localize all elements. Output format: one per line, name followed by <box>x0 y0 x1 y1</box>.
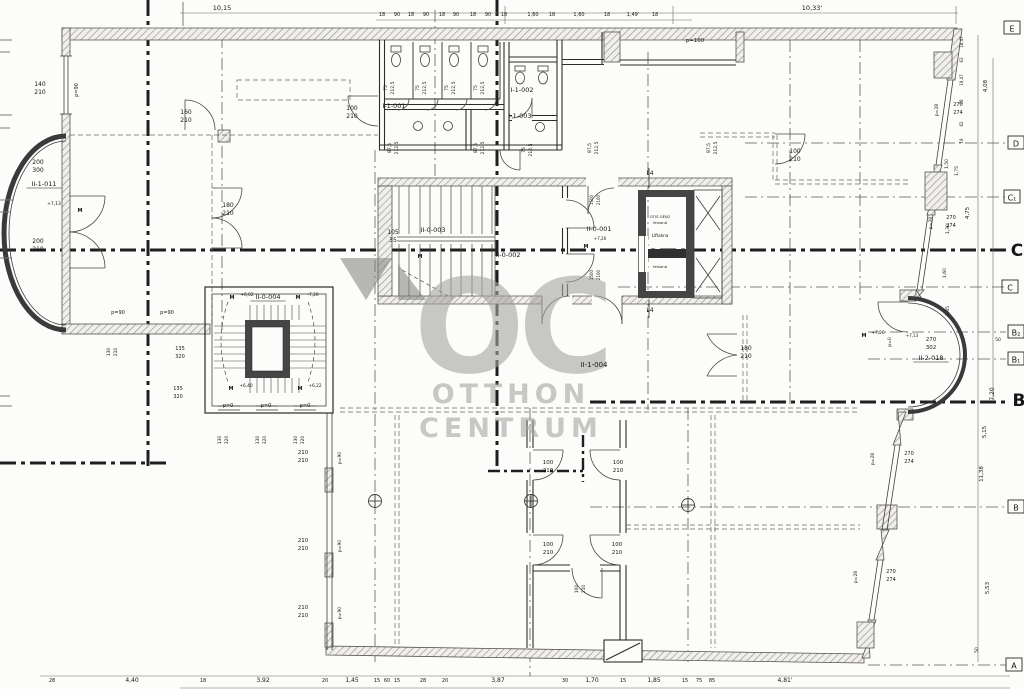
dim-text: 210 <box>581 585 587 594</box>
dim-text: 210 <box>613 468 624 474</box>
dim-text: 3,87 <box>491 677 505 684</box>
room-text: II-0-002 <box>495 251 520 259</box>
label-text: felvonó <box>653 264 668 269</box>
dim-text: 1,85 <box>647 677 661 684</box>
dim-text: 1500 <box>589 269 594 280</box>
dim-text: 135 <box>175 346 185 352</box>
grid-letter: B <box>1013 391 1024 411</box>
dim-text: p=90 <box>74 83 80 97</box>
dim-text: 300 <box>32 167 44 174</box>
dim-text: 1,70 <box>585 677 599 684</box>
dim-text: 78 <box>959 99 964 105</box>
dim-text: p=0 <box>887 337 893 347</box>
grid-letter: B₁ <box>1012 356 1021 365</box>
mark-text: M <box>298 386 303 392</box>
mark-text: M <box>78 208 83 214</box>
dim-text: 320 <box>262 436 268 445</box>
dim-text: 18 <box>470 12 476 18</box>
mark-text: L4 <box>646 307 653 314</box>
room-text: II-0-004 <box>255 293 280 301</box>
dim-text: 274 <box>904 459 914 465</box>
grid-letter: A <box>1011 662 1017 671</box>
level-text: -7,20 <box>307 292 318 298</box>
dim-text: 87,5 <box>387 143 393 153</box>
level-text: +6,22 <box>308 383 321 389</box>
dim-text: 180 <box>222 202 234 209</box>
dim-text: 210 <box>346 113 358 120</box>
dim-text: 50 <box>974 647 980 653</box>
dim-text: 212,5 <box>528 143 534 156</box>
dim-text: 210 <box>298 458 309 464</box>
room-text: I-1-003 <box>508 112 531 120</box>
dim-text: 30 <box>562 678 568 684</box>
dim-text: 28 <box>49 678 55 684</box>
dim-text: 35 <box>389 237 397 244</box>
dim-text: 210 <box>298 613 309 619</box>
dim-text: p=0 <box>261 403 272 409</box>
scan-artifacts <box>0 2 183 406</box>
elevator-door-opening <box>636 236 648 272</box>
dim-text: 210 <box>740 353 752 360</box>
dim-text: 15 <box>394 678 400 684</box>
dim-text: 100 <box>543 460 554 466</box>
dim-text: 62 <box>959 121 964 127</box>
dim-text: 212,5 <box>394 141 400 154</box>
dim-text: 85 <box>709 678 715 684</box>
dim-text: 320 <box>224 436 230 445</box>
dim-text: 1,60 <box>527 12 538 18</box>
dim-text: 15 <box>620 678 626 684</box>
dim-text: p=90 <box>337 452 343 464</box>
dim-text: 302 <box>926 345 937 351</box>
dim-text: p=90 <box>160 310 174 316</box>
mark-text: M <box>230 295 235 301</box>
dim-text: 100 <box>612 542 623 548</box>
dim-text: 320 <box>173 394 183 400</box>
watermark-line2: CENTRUM <box>419 413 603 444</box>
watermark: OC OTTHON CENTRUM <box>414 251 608 444</box>
grid-letter-layer: EDC₁CCB₂B₁BBA <box>1002 21 1024 671</box>
dim-text: 180 <box>740 345 752 352</box>
grid-letter: C₁ <box>1008 194 1017 203</box>
dim-text: 75 <box>473 85 479 91</box>
room-text: I-1-001 <box>382 102 405 110</box>
dim-text: 1,60 <box>573 12 584 18</box>
dim-text: 130 <box>217 436 223 445</box>
dim-text: 212,5 <box>594 141 600 154</box>
dim-text: 130 <box>293 436 299 445</box>
dim-text: 212,5 <box>422 81 428 94</box>
label-text: OTIS GEN2 <box>650 214 671 219</box>
dim-text: 1,30 <box>945 224 951 234</box>
dim-text: p=90 <box>337 540 343 552</box>
dim-text: 212,5 <box>713 141 719 154</box>
dim-text: 210 <box>543 550 554 556</box>
dim-text: 5,15 <box>982 425 988 438</box>
dim-text: 87,5 <box>706 143 712 153</box>
dim-text: 270 <box>946 215 956 221</box>
dim-text: 75 <box>383 85 389 91</box>
dim-text: 100 <box>346 105 358 112</box>
dim-text: p=90 <box>111 310 125 316</box>
dim-text: 212,5 <box>390 81 396 94</box>
mark-text: M <box>418 254 423 260</box>
dim-text: 1500 <box>589 194 594 205</box>
dim-text: p=0 <box>223 403 234 409</box>
label-text: Liftakna <box>652 233 669 238</box>
dim-text: 100 <box>574 585 580 594</box>
dim-text: 18 <box>652 12 658 18</box>
dim-text: 18 <box>408 12 414 18</box>
dim-text: 4,81' <box>777 677 792 684</box>
dim-text: 320 <box>300 436 306 445</box>
dim-text: 63 <box>959 57 964 63</box>
dim-text: 1,75 <box>954 166 960 176</box>
dim-text: 7,20 <box>989 387 996 401</box>
dim-text: 75 <box>696 678 702 684</box>
dim-text: 3,92 <box>256 677 270 684</box>
mark-text: M <box>862 333 867 339</box>
grid-letter: B <box>1013 504 1019 513</box>
grid-letter: C <box>1011 241 1023 261</box>
dim-text: 212,5 <box>480 81 486 94</box>
dim-text: 2100 <box>596 269 601 280</box>
level-text: +7,26 <box>871 330 884 336</box>
watermark-line1: OTTHON <box>432 379 591 410</box>
dim-text: 1,45 <box>345 677 359 684</box>
dim-text: 75 <box>444 85 450 91</box>
mark-text: L4 <box>646 170 653 177</box>
dim-text: 19,47 <box>959 74 964 86</box>
dim-text: 20 <box>322 678 328 684</box>
room-text: II-1-011 <box>31 180 56 188</box>
dim-text: 210 <box>222 210 234 217</box>
dim-text: p=28 <box>870 453 876 465</box>
dim-text: 210 <box>113 348 119 357</box>
mark-text: M <box>296 295 301 301</box>
dim-text: 130 <box>106 348 112 357</box>
dim-text: 18 <box>200 678 206 684</box>
dim-text: 18,47 <box>959 36 964 48</box>
dim-text: 270 <box>926 337 937 343</box>
dim-text: 210 <box>298 605 309 611</box>
dim-text: 18 <box>501 12 507 18</box>
dim-text: 1,60 <box>942 268 948 278</box>
level-text: +6,40 <box>239 383 252 389</box>
dim-text: 130 <box>255 436 261 445</box>
dim-text: 274 <box>953 110 963 116</box>
dim-text: p=90 <box>337 607 343 619</box>
dim-text: 210 <box>32 246 44 253</box>
dim-text: 10,33' <box>802 4 823 12</box>
dim-text: 210 <box>180 117 192 124</box>
dim-text: 4,75 <box>965 206 971 219</box>
dim-text: 18 <box>604 12 610 18</box>
dim-text: 87,5 <box>587 143 593 153</box>
dim-text: p=28 <box>934 104 940 116</box>
dim-text: 5,53 <box>985 581 991 594</box>
grid-letter: C <box>1007 284 1013 293</box>
dim-text: p=0 <box>300 403 311 409</box>
dim-text: 1,85 <box>945 306 951 316</box>
dim-text: 20 <box>442 678 448 684</box>
dim-text: 210 <box>612 550 623 556</box>
dim-text: 90 <box>453 12 459 18</box>
dim-text: 270 <box>886 569 896 575</box>
room-text: II-0-001 <box>586 225 611 233</box>
floorplan-page: OC OTTHON CENTRUM II-1-011I-1-001I-1-002… <box>0 0 1024 689</box>
dim-text: 90 <box>485 12 491 18</box>
dim-text: 100 <box>543 542 554 548</box>
dim-text: 2100 <box>596 194 601 205</box>
dim-text: 87,5 <box>473 143 479 153</box>
room-text: II-1-004 <box>581 361 609 369</box>
dim-text: 15 <box>374 678 380 684</box>
dim-text: 4,40 <box>125 677 139 684</box>
dim-text: p=100 <box>686 38 705 44</box>
structural-columns <box>368 494 695 512</box>
dim-text: 270 <box>904 451 914 457</box>
dim-text: 320 <box>175 354 185 360</box>
label-text: felvonó <box>653 220 668 225</box>
dim-text: 75 <box>521 147 527 153</box>
dim-text: p=28 <box>853 571 859 583</box>
dim-text: 11,38 <box>979 466 985 482</box>
dim-text: 140 <box>34 81 46 88</box>
dim-text: 90 <box>394 12 400 18</box>
dim-text: p=28 <box>928 217 934 229</box>
dim-text: 60 <box>384 678 390 684</box>
dim-text: 18 <box>439 12 445 18</box>
level-text: +6,02 <box>240 292 253 298</box>
grid-letter: B₂ <box>1012 329 1021 338</box>
dim-text: 100 <box>789 148 801 155</box>
dim-text: 210 <box>298 538 309 544</box>
dim-text: 18 <box>379 12 385 18</box>
dim-text: 4,08 <box>983 79 989 92</box>
dim-text: 28 <box>420 678 426 684</box>
room-text: I-1-002 <box>510 86 533 94</box>
room-text: II-2-018 <box>918 354 943 362</box>
dim-text: 105 <box>387 229 399 236</box>
vent-shaft <box>694 190 722 298</box>
mark-text: M <box>229 386 234 392</box>
elevator-shaft <box>636 168 722 318</box>
dim-text: 210 <box>298 450 309 456</box>
dim-text: 212,5 <box>451 81 457 94</box>
dim-text: 212,5 <box>480 141 486 154</box>
dim-text: 50 <box>995 337 1001 343</box>
dim-text: 19 <box>959 138 964 144</box>
dim-text: 90 <box>423 12 429 18</box>
dim-text: 10,15 <box>213 4 232 12</box>
dim-text: 200 <box>32 159 44 166</box>
dim-text: 210 <box>34 89 46 96</box>
floor-plan: OC OTTHON CENTRUM II-1-011I-1-001I-1-002… <box>0 0 1024 689</box>
level-text: +7,26 <box>594 236 607 241</box>
dim-text: 100 <box>613 460 624 466</box>
dim-text: 210 <box>298 546 309 552</box>
dim-text: 274 <box>886 577 896 583</box>
room-text: II-0-003 <box>420 226 445 234</box>
dim-text: 15 <box>682 678 688 684</box>
dim-text: 1,49' <box>627 12 640 18</box>
secondary-stair <box>205 287 333 413</box>
dim-text: 135 <box>173 386 183 392</box>
grid-letter: D <box>1013 140 1019 149</box>
dim-text: 75 <box>415 85 421 91</box>
level-text: +7,13 <box>47 201 61 207</box>
dim-text: 210 <box>543 468 554 474</box>
dim-text: 200 <box>32 238 44 245</box>
level-text: +7,13 <box>906 333 919 338</box>
grid-letter: E <box>1009 25 1014 34</box>
dim-text: 18 <box>549 12 555 18</box>
dim-text: 160 <box>180 109 192 116</box>
dim-text: 210 <box>789 156 801 163</box>
dim-text: 1,50 <box>944 159 950 169</box>
mark-text: M <box>584 244 589 250</box>
